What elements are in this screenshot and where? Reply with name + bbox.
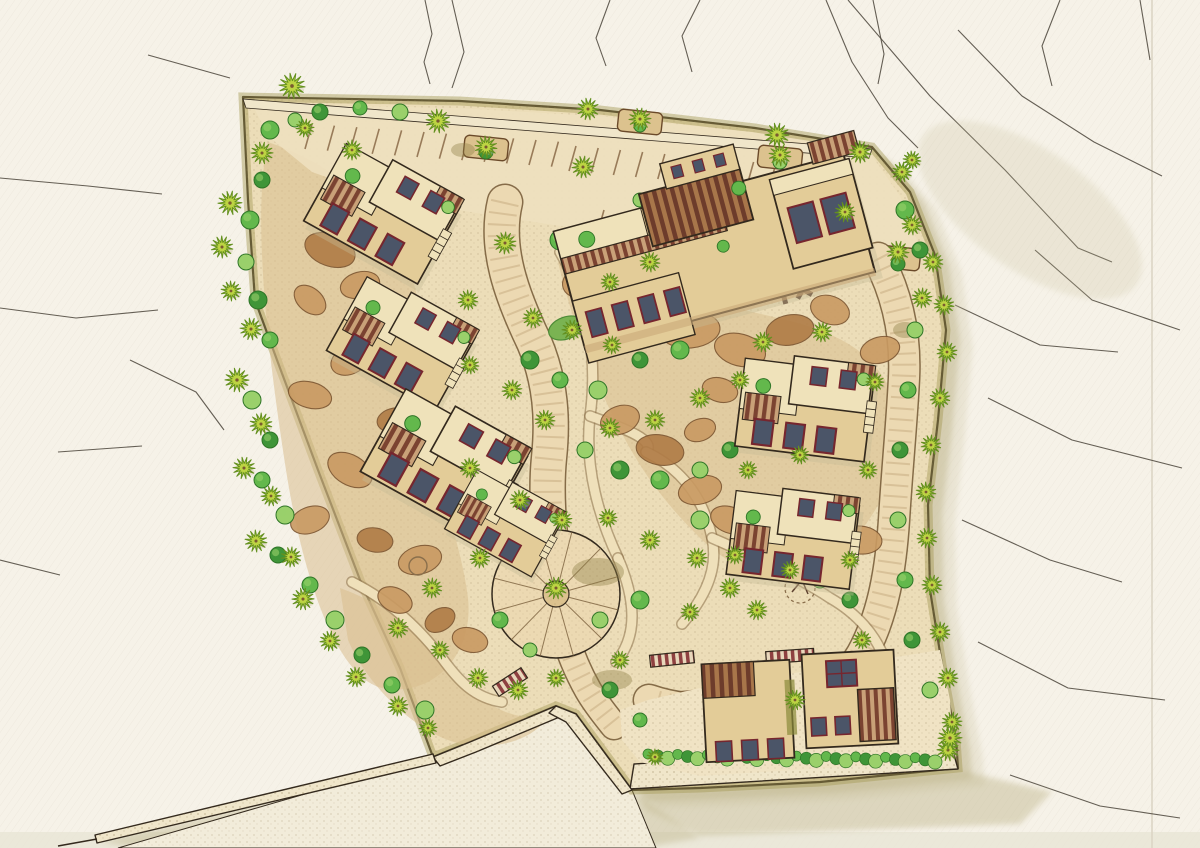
courtyard-building	[802, 650, 899, 749]
villa-building	[725, 483, 865, 596]
villa-building	[734, 350, 881, 469]
courtyard-building	[701, 660, 798, 763]
masterplan-sketch-canvas	[0, 0, 1200, 848]
